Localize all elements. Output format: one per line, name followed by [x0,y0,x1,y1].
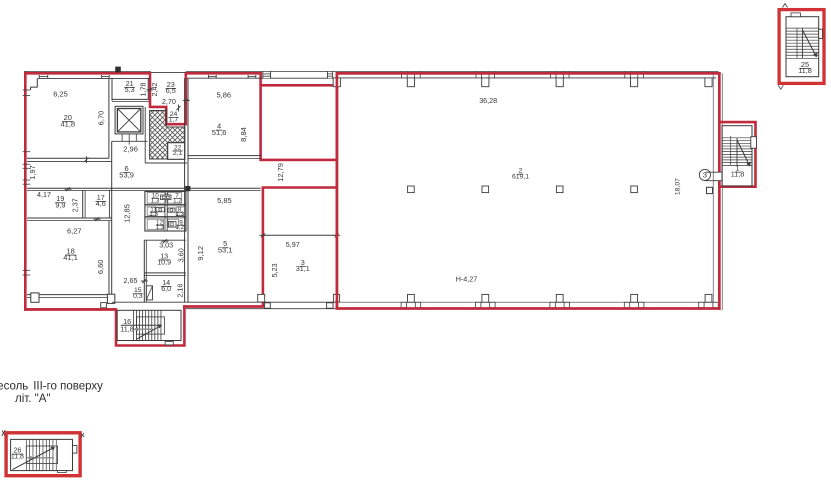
svg-text:5,23: 5,23 [270,263,279,277]
svg-text:1,3: 1,3 [156,224,165,231]
svg-text:2,1: 2,1 [173,150,183,157]
svg-text:11,8: 11,8 [798,66,812,75]
svg-text:6,5: 6,5 [166,86,176,95]
svg-text:3: 3 [703,171,707,180]
svg-text:2,70: 2,70 [162,97,176,106]
svg-text:1,78: 1,78 [138,83,147,97]
svg-text:1,2: 1,2 [173,197,182,204]
svg-text:2,65: 2,65 [124,276,138,285]
svg-text:3,03: 3,03 [159,240,173,249]
svg-text:3,60: 3,60 [176,248,185,262]
svg-text:6,70: 6,70 [96,111,105,126]
svg-text:6,0: 6,0 [161,284,171,293]
svg-text:1,97: 1,97 [28,165,37,180]
svg-text:9,9: 9,9 [55,200,65,209]
svg-text:41,1: 41,1 [63,253,78,262]
svg-text:1,2: 1,2 [175,224,184,231]
svg-text:0,3: 0,3 [133,293,143,300]
svg-text:36,28: 36,28 [479,96,497,105]
svg-text:5,86: 5,86 [216,90,231,99]
svg-text:літ. "А": літ. "А" [15,393,50,405]
svg-text:5,97: 5,97 [286,240,300,249]
svg-text:53,9: 53,9 [119,170,134,179]
svg-text:11,8: 11,8 [120,325,133,334]
svg-text:2,96: 2,96 [123,145,138,154]
svg-text:31,1: 31,1 [296,264,310,273]
svg-text:10,9: 10,9 [157,257,171,266]
svg-text:4,6: 4,6 [96,199,106,208]
svg-text:51,6: 51,6 [212,128,227,137]
svg-text:1,3: 1,3 [151,197,160,204]
svg-text:9,12: 9,12 [196,246,205,261]
svg-text:1,3: 1,3 [149,211,158,218]
svg-text:2,16: 2,16 [176,284,185,298]
svg-text:18,07: 18,07 [674,178,681,195]
svg-text:1,3: 1,3 [175,211,184,218]
svg-text:12,85: 12,85 [123,204,132,223]
svg-text:619,1: 619,1 [512,173,529,180]
svg-text:53,1: 53,1 [218,245,233,254]
svg-text:11,8: 11,8 [11,454,24,461]
svg-text:Антресоль: Антресоль [0,380,28,392]
svg-text:4,17: 4,17 [37,190,51,199]
svg-text:8,84: 8,84 [239,127,248,142]
svg-text:Н-4,27: Н-4,27 [456,275,478,284]
svg-text:1,7: 1,7 [169,117,179,124]
svg-text:12,79: 12,79 [276,163,285,182]
svg-text:6,25: 6,25 [53,90,68,99]
svg-text:2,37: 2,37 [71,198,80,212]
svg-text:2,42: 2,42 [150,83,159,97]
svg-text:ІІІ-го поверху: ІІІ-го поверху [33,380,103,392]
svg-text:5,3: 5,3 [125,85,135,94]
svg-text:41,8: 41,8 [60,119,75,128]
svg-text:11,8: 11,8 [731,170,744,179]
svg-text:6,27: 6,27 [67,227,82,236]
svg-text:6,60: 6,60 [96,259,105,274]
svg-text:5,85: 5,85 [217,196,232,205]
